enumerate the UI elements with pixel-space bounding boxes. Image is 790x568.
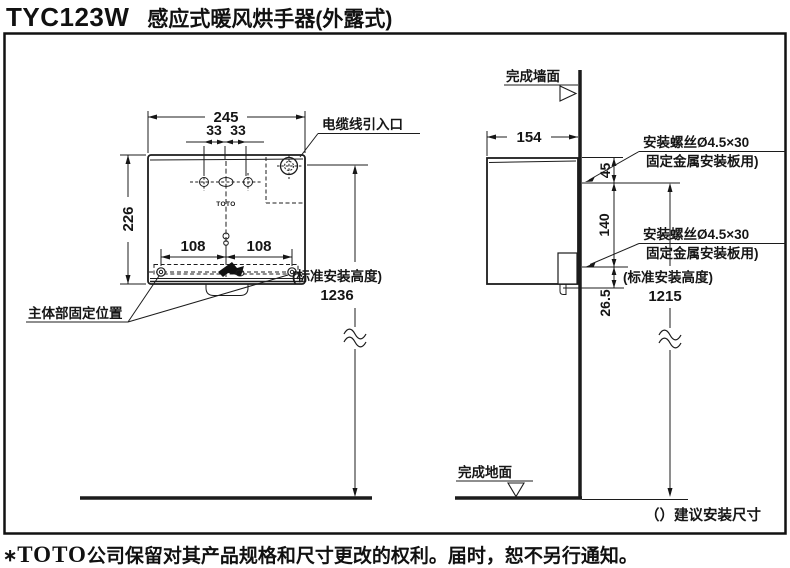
install-height-value: 1236 [320, 287, 353, 304]
install-height-note: (标准安装高度) [623, 269, 713, 285]
screw-label-line2: 固定金属安装板用) [646, 153, 759, 169]
floor-label: 完成地面 [458, 464, 512, 480]
wall-callout: 完成墙面 [504, 68, 578, 101]
dim-bottom-left-label: 108 [180, 238, 205, 255]
toto-logo: TOTO [216, 201, 235, 208]
installation-drawing: TOTO 245 [0, 0, 790, 567]
screw-label-line1: 安装螺丝Ø4.5×30 [643, 226, 749, 242]
footnote-brand: TOTO [17, 542, 87, 567]
floor-callout: 完成地面 [456, 464, 533, 497]
air-outlet [206, 284, 248, 296]
screw-label-line2: 固定金属安装板用) [646, 245, 759, 261]
footnote: ∗TOTO公司保留对其产品规格和尺寸更改的权利。届时，恕不另行通知。 [3, 541, 638, 568]
legend-note: （）建议安装尺寸 [645, 506, 761, 524]
install-height-note: (标准安装高度) [292, 268, 382, 284]
dim-hole-offset-right-label: 33 [230, 122, 246, 138]
drain-hook [560, 284, 566, 295]
footnote-text: 公司保留对其产品规格和尺寸更改的权利。届时，恕不另行通知。 [87, 546, 638, 567]
floor-surface-marker [508, 483, 524, 497]
mounting-plate-section [558, 253, 577, 284]
dim-height-label: 226 [120, 206, 137, 231]
install-height-value: 1215 [648, 288, 681, 305]
dim-width-245: 245 [148, 109, 305, 153]
wall-surface-marker [560, 86, 576, 101]
wall-label: 完成墙面 [506, 68, 560, 84]
dim-screw-spacing-label: 140 [596, 213, 612, 237]
dim-depth-label: 154 [516, 129, 542, 146]
screw-label-line1: 安装螺丝Ø4.5×30 [643, 134, 749, 150]
dim-screw-positions: 45 140 26.5 [596, 158, 616, 317]
cable-entry-label: 电缆线引入口 [322, 116, 403, 132]
dim-bottom-right-label: 108 [246, 238, 271, 255]
front-view: TOTO 245 [26, 109, 420, 498]
dim-screw-bottom-label: 26.5 [597, 289, 613, 316]
body-fixing-hole-left [157, 268, 165, 276]
dim-depth-154: 154 [487, 129, 578, 156]
dim-hole-offset-left-label: 33 [206, 122, 222, 138]
side-view: 完成墙面 154 [455, 68, 786, 524]
asterisk-mark: ∗ [3, 546, 17, 565]
dim-height-226: 226 [120, 155, 146, 284]
cable-entry-callout: 电缆线引入口 [300, 116, 420, 157]
body-fixing-label: 主体部固定位置 [28, 305, 123, 321]
